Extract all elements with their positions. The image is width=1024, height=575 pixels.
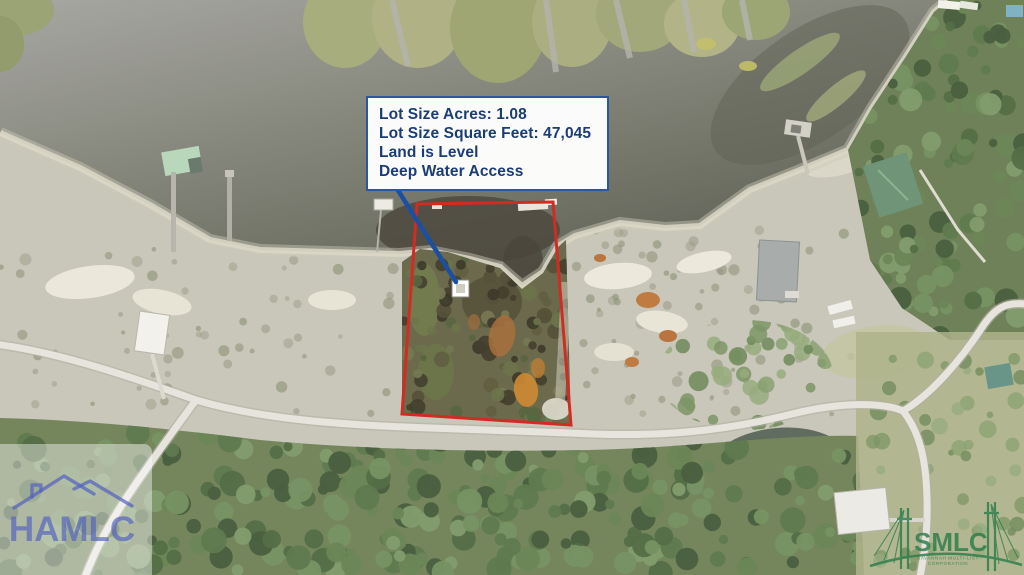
smlc-text: SMLC: [914, 527, 988, 557]
smlc-bridge-icon: SMLC SAVANNAH MULTI-LIST CORPORATION: [868, 494, 1024, 575]
teal-boat: [984, 363, 1013, 389]
waterfront-sign: [374, 199, 393, 210]
lot-info-box: Lot Size Acres: 1.08 Lot Size Square Fee…: [366, 96, 609, 191]
house-white-roof: [134, 311, 169, 355]
lot-size-square-feet: Lot Size Square Feet: 47,045: [379, 124, 596, 143]
listing-aerial-screenshot: Lot Size Acres: 1.08 Lot Size Square Fee…: [0, 0, 1024, 575]
boathouse-shadow: [188, 157, 203, 174]
land-is-level: Land is Level: [379, 143, 596, 162]
boat-lift: [790, 124, 801, 133]
hamlc-watermark: HAMLC: [0, 444, 152, 575]
deep-water-access: Deep Water Access: [379, 162, 596, 181]
smlc-logo: SMLC SAVANNAH MULTI-LIST CORPORATION: [868, 494, 1024, 575]
pool: [1006, 5, 1023, 17]
hamlc-text: HAMLC: [4, 510, 140, 550]
smlc-tagline-2: CORPORATION: [928, 561, 968, 566]
parcel-interior: [399, 240, 573, 427]
pier: [227, 175, 232, 241]
pier-head: [225, 170, 234, 177]
house-roof-icon: [12, 472, 136, 510]
dock-walkway: [171, 172, 176, 252]
parked-car: [785, 291, 799, 298]
aerial-photo: [0, 0, 1024, 575]
smlc-tagline-1: SAVANNAH MULTI-LIST: [917, 556, 979, 561]
lot-size-acres: Lot Size Acres: 1.08: [379, 105, 596, 124]
